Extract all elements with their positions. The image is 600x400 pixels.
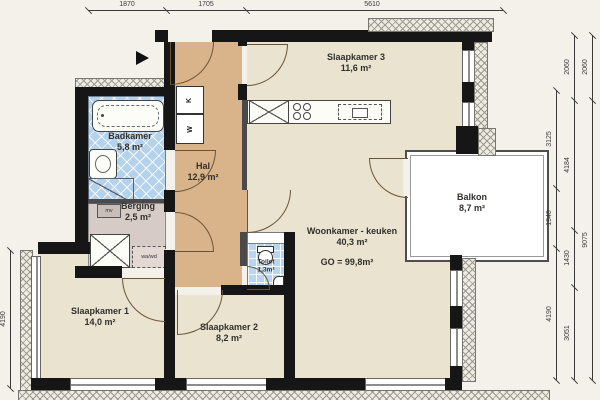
- room-area: 14,0 m²: [71, 317, 129, 328]
- floorplan-canvas: mv wa/wd K W: [0, 0, 600, 400]
- room-name: Badkamer: [108, 131, 152, 142]
- wall-top-left: [155, 30, 168, 42]
- toilet-left-wall: [240, 232, 247, 266]
- dim-right3-2: 9075: [582, 232, 589, 248]
- balkon-pier: [456, 126, 478, 154]
- dim-right2-1: 2060: [564, 59, 571, 75]
- bathtub: [92, 100, 164, 132]
- room-name: Slaapkamer 2: [200, 322, 258, 333]
- room-area: 8,7 m²: [457, 203, 487, 214]
- closet-k-label: K: [187, 97, 194, 102]
- storage-cabinet: [90, 234, 130, 268]
- room-name: Berging: [121, 201, 155, 212]
- dim-right2-4: 3051: [564, 325, 571, 341]
- berging-bottom-wall: [75, 266, 122, 278]
- bath-block-top-wall: [75, 87, 168, 96]
- dim-line-right-1: [556, 90, 557, 380]
- bottom-edge-hatch: [18, 390, 550, 400]
- dim-right2-3: 1430: [564, 250, 571, 266]
- kitchen-appliance: [338, 104, 382, 120]
- bottom-wall-seg3: [266, 378, 365, 390]
- room-area: 11,6 m²: [327, 63, 385, 74]
- mv-label: mv: [105, 208, 112, 214]
- room-slaapkamer3-label: Slaapkamer 3 11,6 m²: [327, 52, 385, 74]
- bottom-wall-seg2: [155, 378, 186, 390]
- dim-top-2: 1705: [198, 1, 214, 8]
- total-area-label: GO = 99,8m²: [321, 257, 374, 267]
- dim-top-3: 5610: [364, 1, 380, 8]
- room-berging-label: Berging 2,5 m²: [121, 201, 155, 223]
- hal-woonkamer-wall: [242, 100, 247, 190]
- dim-right3-1: 2060: [582, 59, 589, 75]
- dim-right1-1: 3125: [546, 131, 553, 147]
- right-wall-seg1: [462, 42, 474, 50]
- dim-right1-2: 1940: [546, 210, 553, 226]
- bath-block-left-wall: [75, 87, 88, 252]
- dim-line-left: [10, 250, 11, 388]
- slaapkamer3-wall-stub: [238, 42, 247, 46]
- wawd-label: wa/wd: [141, 254, 157, 260]
- room-area: 12,9 m²: [187, 172, 218, 183]
- hal-left-wall-lower: [164, 250, 175, 390]
- room-area: 8,2 m²: [200, 333, 258, 344]
- room-name: Woonkamer - keuken: [307, 226, 397, 237]
- slaapkamer1-side-window: [31, 256, 41, 380]
- bottom-wall-seg4: [445, 378, 462, 390]
- room-hal-label: Hal 12,9 m²: [187, 161, 218, 183]
- room-woonkamer-label: Woonkamer - keuken 40,3 m²: [307, 226, 397, 248]
- step-wall: [38, 242, 90, 254]
- room-area: 5,8 m²: [108, 142, 152, 153]
- right-wall-seg4: [450, 255, 462, 270]
- room-area: 2,5 m²: [121, 212, 155, 223]
- right-insulation-lower: [462, 258, 476, 382]
- dim-line-top: [88, 10, 503, 11]
- room-slaapkamer1-label: Slaapkamer 1 14,0 m²: [71, 306, 129, 328]
- room-name: Toilet: [258, 259, 275, 267]
- kitchen-sink: [249, 100, 289, 124]
- right-wall-seg2: [462, 82, 474, 102]
- toilet-right-wall: [284, 232, 295, 390]
- dim-line-right-3: [592, 35, 593, 380]
- room-area: 40,3 m²: [307, 237, 397, 248]
- washer-dryer-space: wa/wd: [132, 246, 166, 268]
- dim-right2-2: 4184: [564, 157, 571, 173]
- bathtub-drain-icon: [101, 114, 104, 117]
- room-toilet-label: Toilet 1,3m²: [258, 259, 275, 274]
- room-balkon-label: Balkon 8,7 m²: [457, 192, 487, 214]
- closet-k: K: [176, 86, 204, 114]
- closet-w-label: W: [186, 126, 193, 133]
- room-slaapkamer2-label: Slaapkamer 2 8,2 m²: [200, 322, 258, 344]
- dim-line-right-2: [574, 35, 575, 380]
- mechanical-vent-unit: mv: [97, 204, 121, 218]
- wall-top-insulation: [368, 18, 494, 32]
- washbasin: [89, 149, 117, 179]
- closet-w: W: [176, 114, 204, 144]
- room-name: Balkon: [457, 192, 487, 203]
- balkon-pier-insulation: [478, 128, 496, 156]
- room-name: Hal: [187, 161, 218, 172]
- dim-right1-3: 4190: [546, 306, 553, 322]
- right-wall-seg5: [450, 306, 462, 328]
- room-badkamer-label: Badkamer 5,8 m²: [108, 131, 152, 153]
- dim-top-1: 1870: [119, 1, 135, 8]
- room-area: 1,3m²: [258, 266, 275, 274]
- room-name: Slaapkamer 1: [71, 306, 129, 317]
- stove: [292, 102, 312, 120]
- bottom-wall-seg1: [31, 378, 70, 390]
- dim-left-1: 4190: [0, 311, 7, 327]
- entrance-arrow-icon: [136, 51, 149, 65]
- hal-left-wall-mid: [164, 190, 175, 212]
- room-name: Slaapkamer 3: [327, 52, 385, 63]
- slaapkamer3-left-wall: [238, 84, 247, 100]
